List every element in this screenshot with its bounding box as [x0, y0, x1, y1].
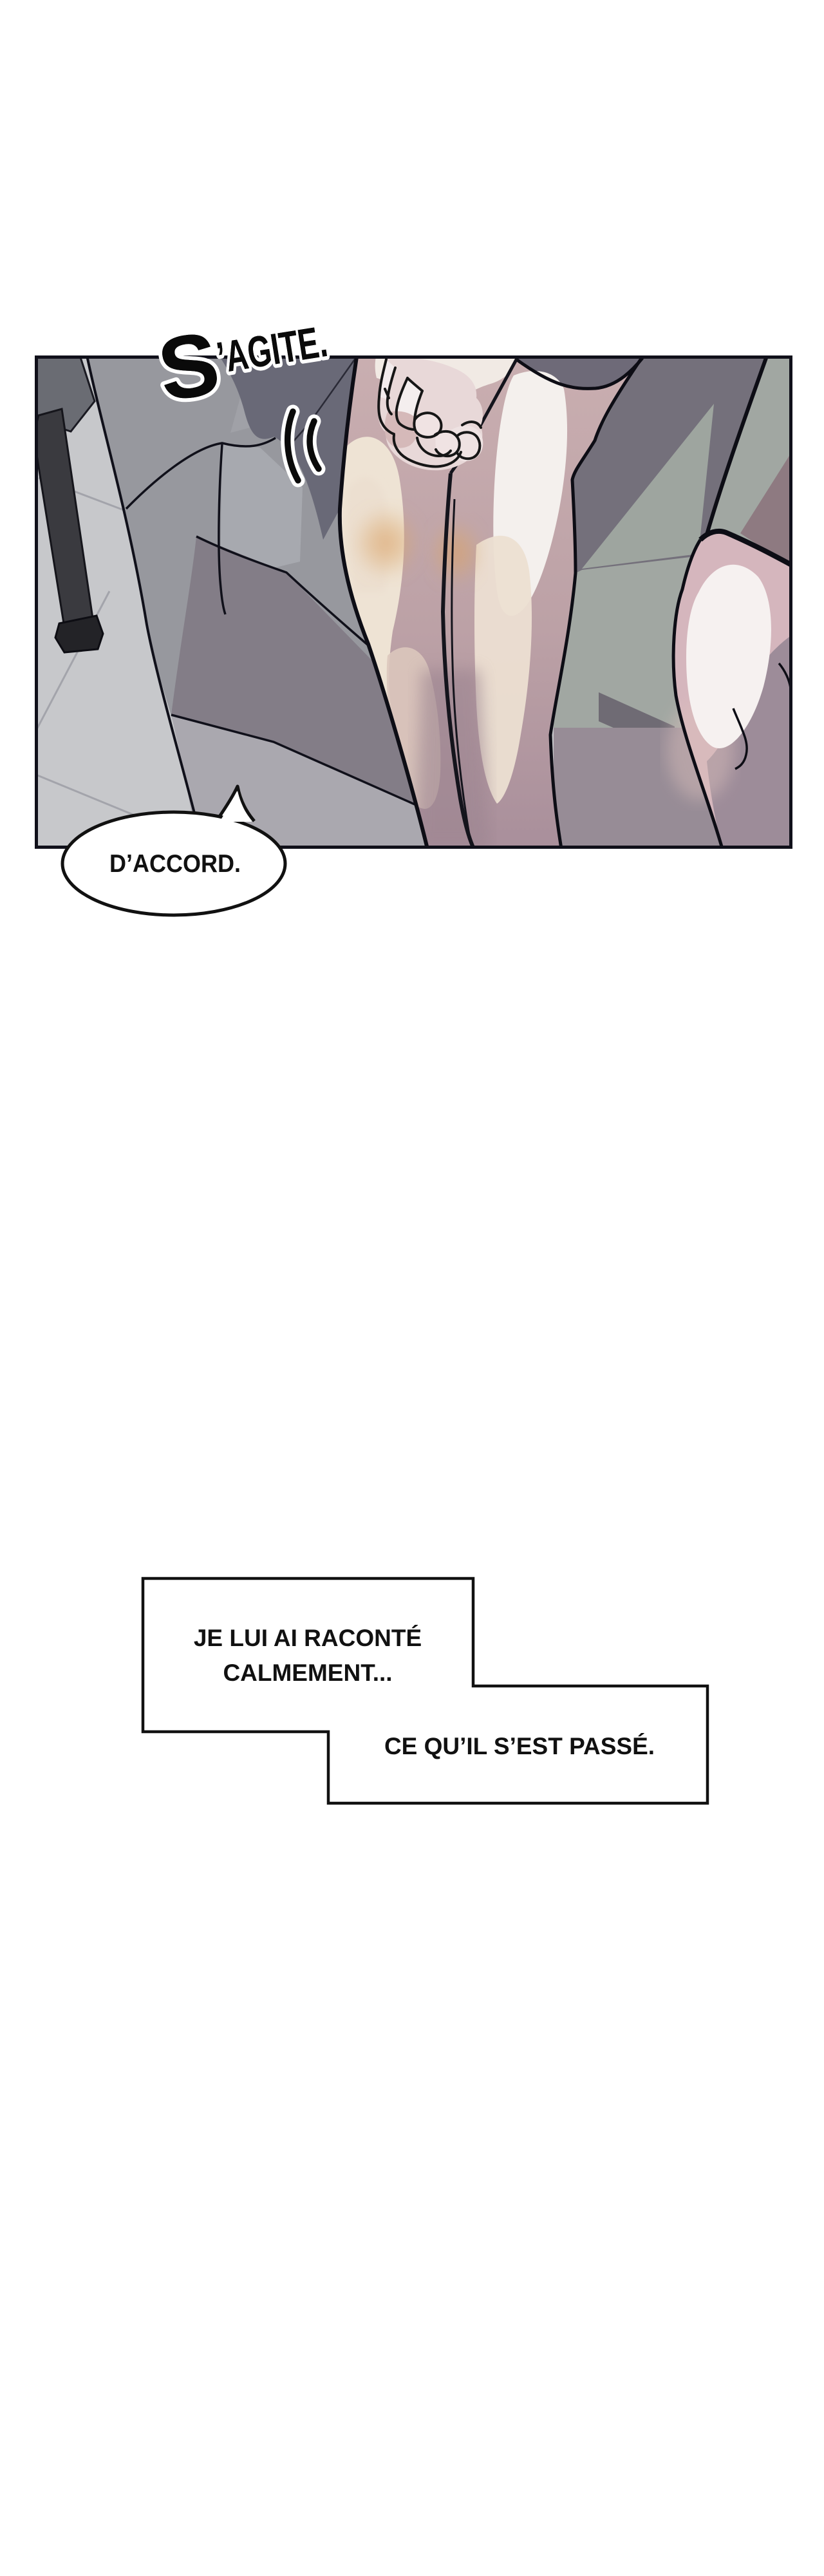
svg-text:CALMEMENT...: CALMEMENT...	[223, 1660, 392, 1686]
svg-text:D’ACCORD.: D’ACCORD.	[109, 850, 241, 878]
svg-text:JE LUI AI RACONTÉ: JE LUI AI RACONTÉ	[194, 1625, 422, 1651]
svg-text:CE QU’IL S’EST PASSÉ.: CE QU’IL S’EST PASSÉ.	[384, 1733, 655, 1759]
